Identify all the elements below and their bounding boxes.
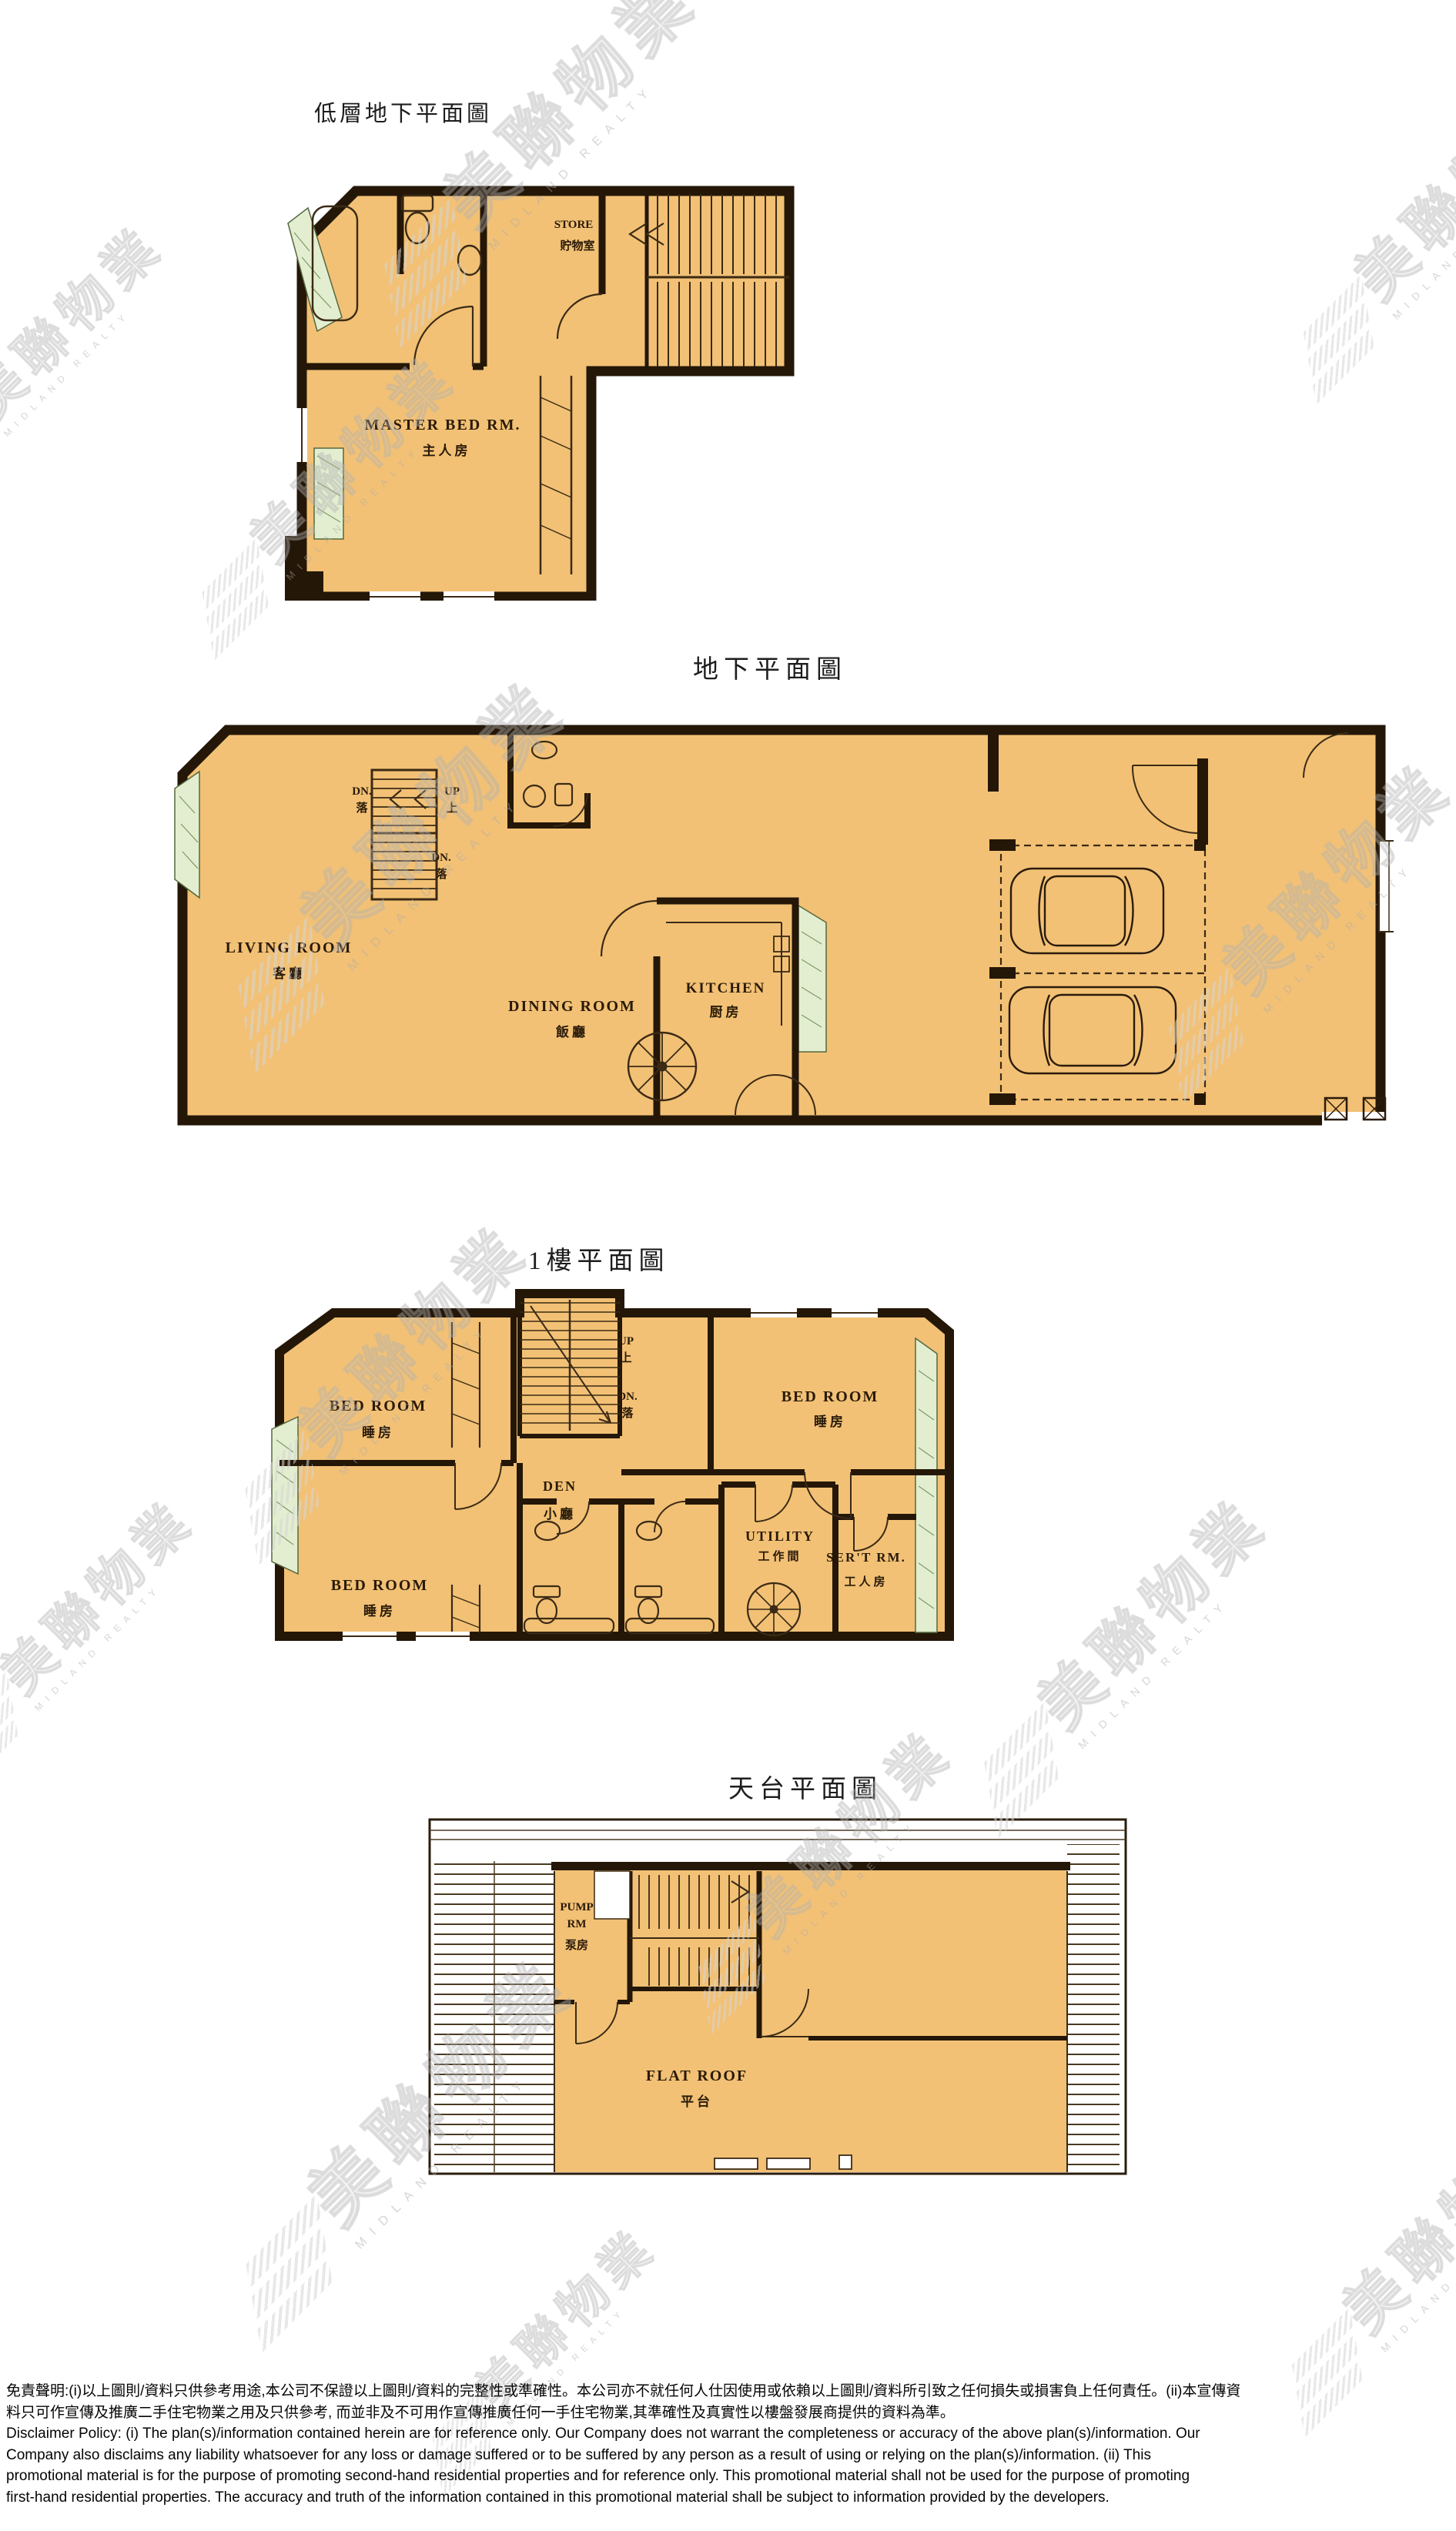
- ground-floor-title: 地下平面圖: [693, 648, 847, 685]
- watermark-cjk-text: 美聯物業: [0, 1491, 204, 1703]
- midland-watermark: 美聯物業MIDLAND REALTY: [956, 1488, 1291, 1823]
- midland-logo-icon: [0, 1671, 18, 1786]
- store-room-label-zh: 貯物室: [539, 237, 616, 253]
- master-bedroom-label: MASTER BED RM.: [354, 417, 531, 434]
- window-bay: [1379, 841, 1394, 932]
- spiral-staircase: [748, 1583, 800, 1635]
- stair-up-label-zh: 上: [437, 799, 467, 815]
- midland-watermark: 美聯物業MIDLAND REALTY: [0, 217, 183, 500]
- den-label: DEN: [506, 1478, 614, 1495]
- stair-up-label: UP: [611, 1335, 641, 1348]
- living-room-label-zh: 客廳: [200, 963, 377, 982]
- stair-dn2-label-zh: 落: [423, 865, 460, 882]
- plan-roof: PUMP RM 泵房 FLAT ROOF 平台: [423, 1813, 1132, 2183]
- kitchen-label-zh: 厨房: [658, 1001, 793, 1020]
- den-label-zh: 小廳: [506, 1503, 614, 1522]
- disclaimer-en-line2: Company also disclaims any liability wha…: [6, 2445, 1452, 2466]
- living-room-label: LIVING ROOM: [200, 939, 377, 957]
- lower-ground-title: 低層地下平面圖: [314, 95, 492, 128]
- watermark-latin-text: MIDLAND REALTY: [1391, 118, 1456, 322]
- kitchen-label: KITCHEN: [658, 980, 793, 997]
- sloped-roof-hatch: [1067, 1844, 1120, 2172]
- roof-drawing: [423, 1813, 1132, 2183]
- utility-label: UTILITY: [722, 1528, 838, 1545]
- watermark-latin-text: MIDLAND REALTY: [1379, 2151, 1456, 2355]
- watermark-latin-text: MIDLAND REALTY: [1076, 1536, 1292, 1752]
- midland-logo-icon: [202, 537, 269, 661]
- midland-watermark: 美聯物業MIDLAND REALTY: [1266, 2105, 1456, 2422]
- watermark-latin-text: MIDLAND REALTY: [2, 257, 183, 439]
- stair-dn-label-zh: 落: [611, 1404, 644, 1421]
- midland-logo-icon: [246, 2194, 333, 2353]
- watermark-cjk-text: 美聯物業: [1334, 2105, 1456, 2343]
- disclaimer-block: 免責聲明:(i)以上圖則/資料只供參考用途,本公司不保證以上圖則/資料的完整性或…: [6, 2381, 1452, 2508]
- pump-room-label-zh: 泵房: [553, 1937, 601, 1953]
- stair-up-label: UP: [437, 785, 467, 798]
- disclaimer-zh-line1: 免責聲明:(i)以上圖則/資料只供參考用途,本公司不保證以上圖則/資料的完整性或…: [6, 2381, 1452, 2402]
- pump-room-label-1: PUMP: [553, 1901, 601, 1914]
- disclaimer-en-line4: first-hand residential properties. The a…: [6, 2487, 1452, 2509]
- bedroom3-label-zh: 睡房: [295, 1600, 464, 1619]
- stair-dn2-label: DN.: [423, 852, 460, 865]
- bedroom2-label-zh: 睡房: [745, 1411, 915, 1430]
- stair-dn-label: DN.: [345, 785, 379, 798]
- step: [303, 571, 323, 601]
- bedroom1-label-zh: 睡房: [293, 1421, 463, 1441]
- dining-room-label-zh: 飯廳: [484, 1021, 661, 1040]
- watermark-cjk-text: 美聯物業: [1028, 1488, 1279, 1739]
- first-floor-title: 1樓平面圖: [528, 1240, 670, 1277]
- flat-roof-label-zh: 平台: [639, 2091, 755, 2110]
- plan-first-floor: BED ROOM 睡房 BED ROOM 睡房 BED ROOM 睡房 DEN …: [266, 1278, 962, 1671]
- stair-dn-label: DN.: [611, 1391, 644, 1404]
- bedroom3-label: BED ROOM: [295, 1577, 464, 1595]
- watermark-latin-text: MIDLAND REALTY: [32, 1532, 214, 1713]
- midland-watermark: 美聯物業MIDLAND REALTY: [1277, 72, 1456, 390]
- stair-up-label-zh: 上: [611, 1349, 641, 1365]
- flat-roof-label: FLAT ROOF: [639, 2067, 755, 2085]
- bedroom2-label: BED ROOM: [745, 1388, 915, 1406]
- master-bedroom-label-zh: 主人房: [358, 440, 535, 459]
- dining-room-label: DINING ROOM: [484, 998, 661, 1016]
- step: [285, 536, 303, 601]
- bedroom1-label: BED ROOM: [293, 1398, 463, 1415]
- stair-dn-label-zh: 落: [345, 799, 379, 815]
- disclaimer-zh-line2: 料只可作宣傳及推廣二手住宅物業之用及只供參考, 而並非及不可用作宣傳推廣任何一手…: [6, 2402, 1452, 2424]
- store-room-label: STORE: [535, 219, 612, 232]
- pump-room-label-2: RM: [553, 1918, 601, 1931]
- watermark-cjk-text: 美聯物業: [0, 217, 173, 429]
- spiral-staircase: [628, 1033, 696, 1100]
- watermark-cjk-text: 美聯物業: [1345, 72, 1456, 310]
- midland-watermark: 美聯物業MIDLAND REALTY: [0, 1491, 214, 1774]
- roof-title: 天台平面圖: [728, 1768, 882, 1805]
- servant-room-label: SER'T RM.: [808, 1550, 924, 1565]
- floorplan-page: 低層地下平面圖: [0, 0, 1456, 2531]
- midland-logo-icon: [1304, 274, 1374, 404]
- plan-ground: LIVING ROOM 客廳 DINING ROOM 飯廳 KITCHEN 厨房…: [166, 716, 1394, 1190]
- disclaimer-en-line1: Disclaimer Policy: (i) The plan(s)/infor…: [6, 2423, 1452, 2445]
- servant-room-label-zh: 工人房: [808, 1573, 924, 1589]
- disclaimer-en-line3: promotional material is for the purpose …: [6, 2466, 1452, 2487]
- plan-lower-ground: STORE 貯物室 MASTER BED RM. 主人房: [285, 177, 801, 601]
